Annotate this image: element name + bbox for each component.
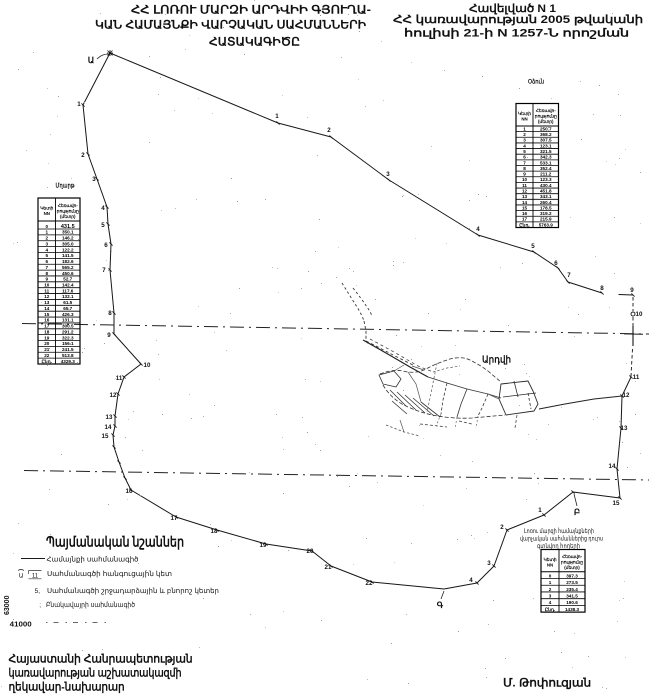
svg-text:63000: 63000 [4, 595, 11, 615]
svg-text:1: 1 [77, 101, 81, 108]
svg-text:1: 1 [523, 126, 526, 131]
svg-text:2: 2 [45, 236, 48, 241]
svg-text:NN: NN [547, 562, 553, 567]
svg-text:319.2: 319.2 [540, 211, 552, 216]
svg-text:(մետր): (մետր) [60, 214, 76, 219]
svg-text:305.0: 305.0 [62, 241, 74, 246]
svg-text:Օձուն: Օձուն [528, 78, 544, 86]
svg-text:513.8: 513.8 [62, 353, 74, 358]
svg-text:Պայմանական նշաններ: Պայմանական նշաններ [46, 536, 184, 551]
svg-text:Ա: Ա [88, 55, 95, 65]
svg-text:41000: 41000 [10, 622, 32, 629]
svg-text:146.2: 146.2 [62, 236, 74, 241]
svg-text:122.2: 122.2 [62, 247, 74, 252]
svg-text:211.2: 211.2 [540, 172, 552, 177]
svg-text:6: 6 [45, 259, 48, 264]
svg-text:(մետր): (մետր) [564, 565, 580, 570]
svg-text:6: 6 [104, 242, 108, 249]
svg-text:156.1: 156.1 [62, 341, 74, 346]
svg-text:12: 12 [623, 392, 630, 399]
svg-text:ղեկավար-նախարար: ղեկավար-նախարար [9, 682, 125, 694]
svg-text:123.3: 123.3 [540, 177, 552, 182]
svg-text:291.2: 291.2 [62, 329, 74, 334]
svg-text:1: 1 [549, 580, 552, 585]
svg-text:Բ: Բ [574, 507, 581, 517]
svg-text:10: 10 [636, 311, 643, 318]
svg-text:1: 1 [538, 507, 542, 514]
svg-text:11: 11 [116, 375, 123, 382]
svg-text:132.1: 132.1 [62, 294, 74, 299]
svg-text:190.6: 190.6 [566, 600, 578, 605]
svg-text:307.5: 307.5 [540, 138, 552, 143]
svg-text:14: 14 [44, 306, 50, 311]
svg-text:2: 2 [500, 524, 504, 531]
svg-text:ԿԱՆ ՀԱՄԱՅՆՔԻ ՎԱՐՉԱԿԱՆ ՍԱՀՄԱՆՆԵ: ԿԱՆ ՀԱՄԱՅՆՔԻ ՎԱՐՉԱԿԱՆ ՍԱՀՄԱՆՆԵՐԻ [95, 19, 367, 32]
svg-text:260.4: 260.4 [540, 200, 552, 205]
svg-text:235.4: 235.4 [566, 587, 578, 592]
svg-text:273.5: 273.5 [566, 580, 578, 585]
svg-text:3: 3 [487, 560, 491, 567]
svg-text:342.3: 342.3 [540, 155, 552, 160]
svg-text:հուլիսի 21-ի N 1257-Ն որոշման: հուլիսի 21-ի N 1257-Ն որոշման [404, 27, 629, 40]
svg-text:7: 7 [45, 265, 48, 270]
svg-text:4: 4 [101, 205, 105, 212]
svg-text:10: 10 [44, 283, 50, 288]
svg-text:241.5: 241.5 [62, 347, 74, 352]
svg-text:341.5: 341.5 [566, 593, 578, 598]
svg-text:10: 10 [522, 177, 528, 182]
svg-text:430.4: 430.4 [540, 183, 552, 188]
svg-text:117.6: 117.6 [62, 288, 74, 293]
svg-text:15: 15 [522, 205, 528, 210]
svg-text:65.7: 65.7 [63, 306, 72, 311]
svg-text:1438.3: 1438.3 [565, 607, 579, 612]
svg-text:12: 12 [522, 188, 528, 193]
svg-text:6: 6 [554, 260, 558, 267]
svg-text:14: 14 [609, 463, 616, 470]
svg-text:3: 3 [523, 138, 526, 143]
svg-text:10: 10 [144, 362, 151, 369]
svg-text:322.3: 322.3 [62, 335, 74, 340]
svg-text:12: 12 [110, 392, 117, 399]
svg-text:7: 7 [523, 160, 526, 165]
svg-text:2: 2 [81, 152, 85, 159]
svg-text:NN: NN [44, 211, 50, 216]
svg-text:350.1: 350.1 [62, 230, 74, 235]
svg-text:8: 8 [108, 310, 112, 317]
svg-text:3: 3 [549, 593, 552, 598]
svg-text:22: 22 [44, 353, 50, 358]
svg-text:451.8: 451.8 [540, 188, 552, 193]
svg-text:5: 5 [523, 149, 526, 154]
svg-text:4: 4 [549, 600, 552, 605]
svg-text:13: 13 [106, 414, 113, 421]
svg-text:13: 13 [522, 194, 528, 199]
svg-text:3: 3 [92, 176, 96, 183]
svg-text:4: 4 [476, 226, 480, 233]
svg-text:565.2: 565.2 [62, 265, 74, 270]
svg-text:22: 22 [366, 580, 373, 587]
svg-text:182.6: 182.6 [62, 259, 74, 264]
svg-text:52.7: 52.7 [63, 277, 72, 282]
svg-text:15: 15 [44, 312, 50, 317]
svg-text:Լոռու մարզի համայնքների: Լոռու մարզի համայնքների [524, 527, 594, 535]
svg-text:321.5: 321.5 [540, 149, 552, 154]
svg-text:Կետի: Կետի [518, 111, 531, 116]
svg-text:178.5: 178.5 [540, 205, 552, 210]
svg-text:9: 9 [45, 277, 48, 282]
svg-text:18: 18 [44, 329, 50, 334]
svg-text:Հայաստանի Հանրապետության: Հայաստանի Հանրապետության [9, 654, 193, 666]
svg-text:գտնվող հողերի: գտնվող հողերի [537, 542, 580, 550]
svg-text:13: 13 [44, 300, 50, 305]
svg-text:ՀՀ կառավարության 2005 թվականի: ՀՀ կառավարության 2005 թվականի [393, 14, 643, 26]
svg-text:3: 3 [386, 171, 390, 178]
svg-text:Գ: Գ [437, 600, 444, 610]
svg-text:17: 17 [522, 217, 528, 222]
svg-text:533.1: 533.1 [540, 160, 552, 165]
svg-text:6: 6 [523, 155, 526, 160]
svg-text:4: 4 [45, 247, 48, 252]
svg-text:141.5: 141.5 [62, 253, 74, 258]
svg-text:8: 8 [523, 166, 526, 171]
svg-text:215.9: 215.9 [540, 217, 552, 222]
svg-text:17: 17 [171, 515, 178, 522]
svg-text:5763.9: 5763.9 [539, 222, 553, 227]
svg-text:14: 14 [522, 200, 528, 205]
svg-text:19: 19 [44, 335, 50, 340]
svg-text:11: 11 [633, 374, 640, 381]
svg-text:7: 7 [102, 267, 106, 274]
svg-text:16: 16 [126, 488, 133, 495]
svg-text:16: 16 [44, 318, 50, 323]
svg-text:2: 2 [549, 587, 552, 592]
svg-text:Կետի: Կետի [40, 206, 53, 211]
svg-text:4: 4 [469, 577, 473, 584]
svg-text:7: 7 [567, 272, 571, 279]
svg-text:5: 5 [531, 243, 535, 250]
svg-text:397.3: 397.3 [566, 573, 578, 578]
svg-text:4329.3: 4329.3 [61, 359, 75, 364]
svg-text:450.6: 450.6 [62, 271, 74, 276]
svg-text:վարչական սահմաններից դուրս: վարչական սահմաններից դուրս [520, 535, 603, 543]
svg-text:14: 14 [105, 424, 112, 431]
svg-text:0: 0 [45, 224, 48, 229]
svg-text:2: 2 [523, 132, 526, 137]
svg-text:142.4: 142.4 [62, 283, 74, 288]
svg-text:8: 8 [45, 271, 48, 276]
svg-text:3: 3 [45, 241, 48, 246]
svg-text:11: 11 [44, 288, 49, 293]
svg-text:11: 11 [522, 183, 527, 188]
svg-text:61.5: 61.5 [63, 300, 72, 305]
svg-text:250.7: 250.7 [540, 126, 552, 131]
svg-text:Կետի: Կետի [543, 557, 556, 562]
svg-text:Հեռավո-: Հեռավո- [536, 108, 557, 113]
svg-text:1: 1 [45, 230, 48, 235]
svg-text:15: 15 [102, 433, 109, 440]
svg-text:Հեռավո-: Հեռավո- [562, 554, 583, 559]
svg-text:5,: 5, [35, 588, 41, 595]
svg-text:9: 9 [523, 172, 526, 177]
svg-text:19: 19 [260, 542, 267, 549]
svg-text:;: ; [39, 602, 41, 609]
svg-text:0: 0 [549, 573, 552, 578]
svg-text:(մետր): (մետր) [538, 119, 554, 124]
svg-text:Սահմանագծի շրջադարձային և բնոր: Սահմանագծի շրջադարձային և բնորոշ կետեր [47, 587, 219, 595]
svg-text:ՀՀ ԼՈՌՈՒ ՄԱՐԶԻ ԱՐԴՎԻԻ ԳՅՈՒՂԱ-: ՀՀ ԼՈՌՈՒ ՄԱՐԶԻ ԱՐԴՎԻԻ ԳՅՈՒՂԱ- [131, 4, 371, 17]
svg-text:13: 13 [621, 425, 628, 432]
svg-text:300.5: 300.5 [62, 324, 74, 329]
svg-text:րությունը: րությունը [561, 560, 583, 565]
svg-text:րությունը: րությունը [535, 114, 557, 119]
svg-text:20: 20 [307, 548, 314, 555]
svg-text:123.1: 123.1 [540, 143, 552, 148]
svg-text:NN: NN [521, 116, 527, 121]
svg-text:5: 5 [45, 253, 48, 258]
svg-text:2: 2 [327, 127, 331, 134]
svg-text:426.3: 426.3 [62, 312, 74, 317]
svg-text:9: 9 [107, 332, 111, 339]
svg-text:16: 16 [522, 211, 528, 216]
svg-text:368.2: 368.2 [540, 132, 552, 137]
svg-text:1: 1 [275, 113, 279, 120]
svg-text:343.1: 343.1 [540, 194, 552, 199]
svg-text:5: 5 [101, 222, 105, 229]
svg-text:12: 12 [44, 294, 50, 299]
svg-text:21: 21 [325, 564, 332, 571]
svg-text:ՀԱՏԱԿԱԳԻԾԸ: ՀԱՏԱԿԱԳԻԾԸ [209, 36, 301, 49]
svg-text:15: 15 [613, 500, 620, 507]
svg-text:Սահմանագծի հանգուցային կետ: Սահմանագծի հանգուցային կետ [47, 570, 172, 578]
svg-text:Ա: Ա [19, 573, 24, 580]
svg-text:17: 17 [44, 324, 50, 329]
svg-text:131.1: 131.1 [62, 318, 74, 323]
svg-text:Բնակավայրի սահմանագիծ: Բնակավայրի սահմանագիծ [46, 601, 135, 609]
svg-text:կառավարության աշխատակազմի: կառավարության աշխատակազմի [9, 668, 182, 680]
svg-text:Մ. Թոփուզյան: Մ. Թոփուզյան [503, 678, 591, 690]
svg-text:352.4: 352.4 [540, 166, 552, 171]
svg-text:Արդվի: Արդվի [482, 355, 511, 366]
svg-text:Համայնքի սահմանագիծ: Համայնքի սահմանագիծ [47, 556, 139, 564]
svg-text:րությունը: րությունը [57, 208, 79, 213]
svg-text:20: 20 [44, 341, 50, 346]
svg-text:Մղարթ: Մղարթ [56, 182, 76, 190]
svg-text:18: 18 [211, 528, 218, 535]
svg-text:8: 8 [600, 285, 604, 292]
svg-text:4: 4 [523, 143, 526, 148]
svg-text:Հեռավո-: Հեռավո- [58, 203, 79, 208]
svg-text:21: 21 [44, 347, 50, 352]
svg-text:9: 9 [630, 287, 634, 294]
